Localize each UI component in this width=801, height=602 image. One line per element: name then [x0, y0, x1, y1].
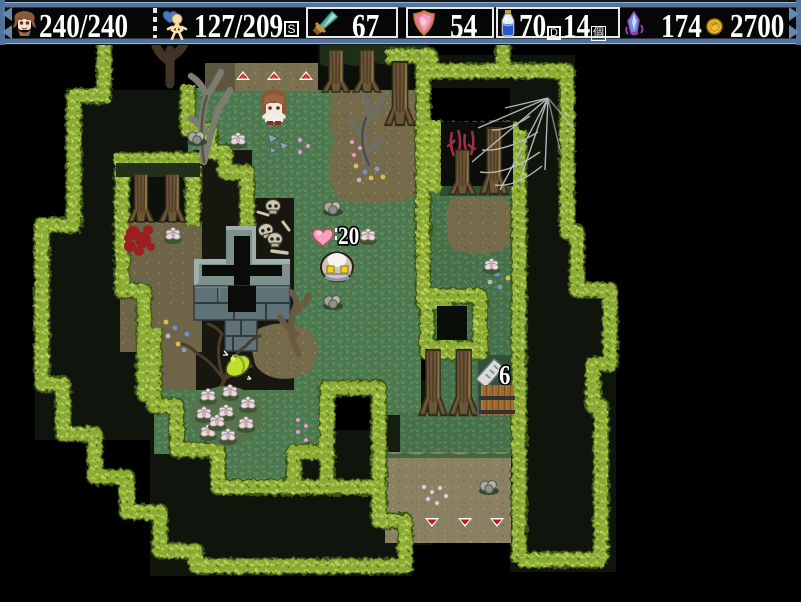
svg-text:20: 20: [338, 222, 359, 250]
